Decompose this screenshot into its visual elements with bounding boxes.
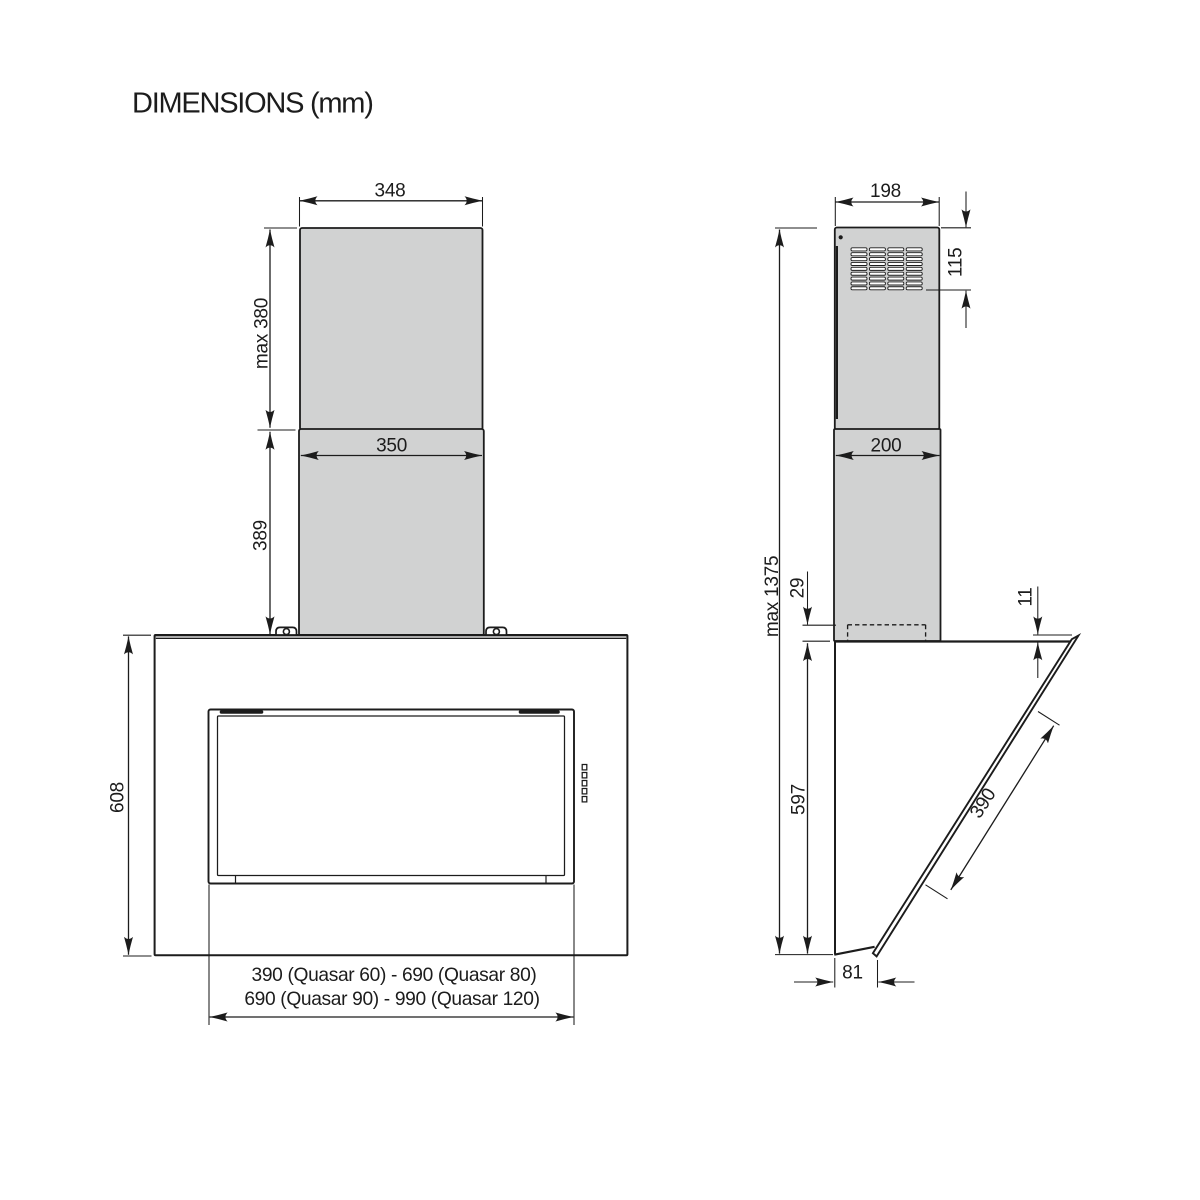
svg-text:200: 200 (871, 436, 902, 457)
svg-text:608: 608 (108, 782, 129, 813)
svg-text:max 1375: max 1375 (762, 556, 783, 637)
svg-text:81: 81 (842, 962, 863, 983)
svg-text:348: 348 (375, 181, 406, 202)
svg-text:350: 350 (376, 436, 407, 457)
svg-text:115: 115 (945, 248, 966, 278)
svg-text:max 380: max 380 (251, 298, 272, 369)
svg-text:390 (Quasar 60) - 690 (Quasar: 390 (Quasar 60) - 690 (Quasar 80) (252, 965, 537, 986)
svg-text:DIMENSIONS (mm): DIMENSIONS (mm) (132, 88, 373, 120)
svg-text:198: 198 (870, 181, 901, 202)
svg-text:11: 11 (1015, 587, 1036, 606)
svg-text:597: 597 (788, 784, 809, 815)
svg-text:29: 29 (788, 578, 809, 599)
svg-text:389: 389 (251, 520, 272, 551)
svg-text:690 (Quasar 90) - 990 (Quasar: 690 (Quasar 90) - 990 (Quasar 120) (244, 989, 539, 1010)
